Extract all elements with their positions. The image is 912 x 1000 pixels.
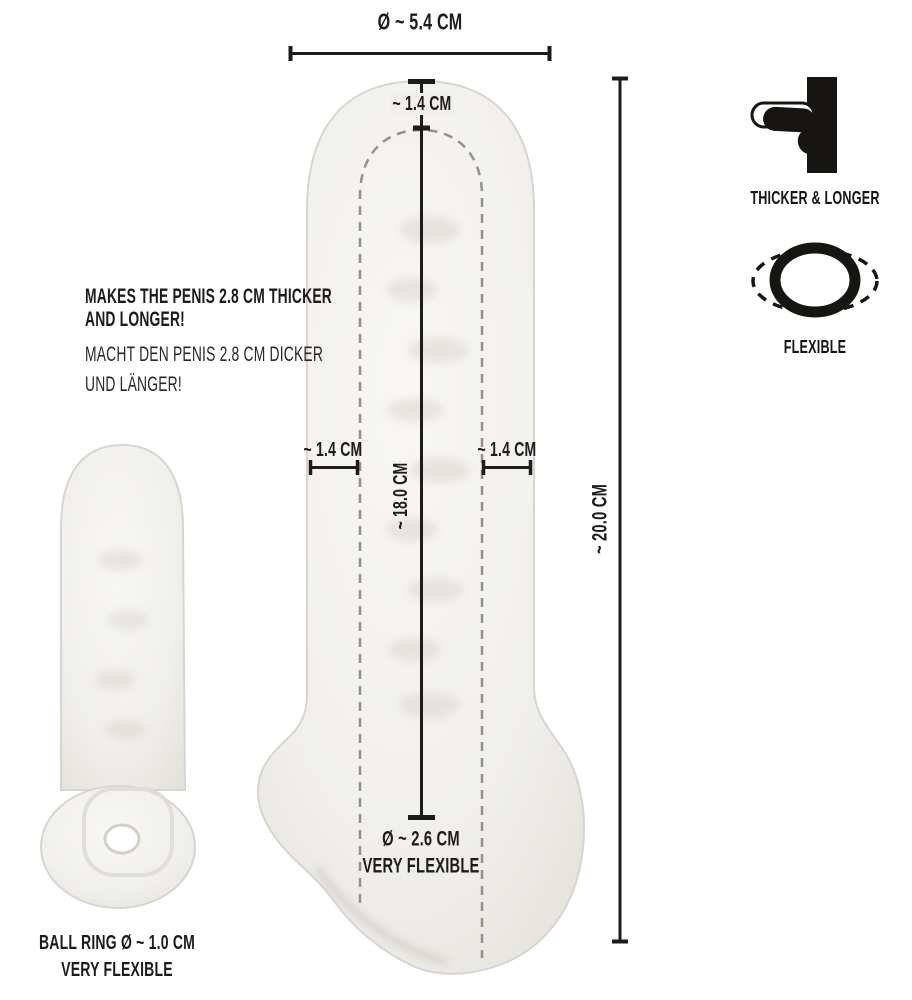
flexible-ring-icon: [745, 233, 885, 333]
small-sleeve-hole: [105, 825, 139, 853]
feature-flexible: FLEXIBLE: [745, 233, 885, 363]
description-de-line1: MACHT DEN PENIS 2.8 CM DICKER: [85, 340, 459, 370]
ball-ring-flexible-label: VERY FLEXIBLE: [37, 959, 197, 981]
top-diameter-label: Ø ~ 5.4 CM: [359, 9, 480, 34]
product-dimension-diagram: Ø ~ 5.4 CM ~ 1.4 CM ~ 1.4 CM ~ 1.4 CM ~ …: [0, 0, 912, 1000]
overall-length-label: ~ 20.0 CM: [588, 469, 611, 569]
thicker-longer-icon: [742, 66, 888, 186]
product-description: MAKES THE PENIS 2.8 CM THICKER AND LONGE…: [85, 285, 459, 400]
description-en-line1: MAKES THE PENIS 2.8 CM THICKER: [85, 285, 459, 308]
description-en-line2: AND LONGER!: [85, 308, 459, 331]
tip-thickness-label: ~ 1.4 CM: [376, 93, 468, 115]
inner-length-label: ~ 18.0 CM: [390, 448, 412, 544]
left-wall-label: ~ 1.4 CM: [291, 439, 375, 461]
feature-thicker-longer-label: THICKER & LONGER: [723, 188, 908, 209]
feature-flexible-label: FLEXIBLE: [770, 337, 859, 358]
opening-flexible-label: VERY FLEXIBLE: [337, 854, 504, 877]
description-de-line2: UND LÄNGER!: [85, 370, 459, 400]
right-wall-label: ~ 1.4 CM: [465, 439, 549, 461]
opening-diameter-label: Ø ~ 2.6 CM: [366, 827, 477, 850]
feature-thicker-longer: THICKER & LONGER: [742, 66, 888, 211]
ball-ring-label: BALL RING Ø ~ 1.0 CM: [6, 932, 229, 954]
